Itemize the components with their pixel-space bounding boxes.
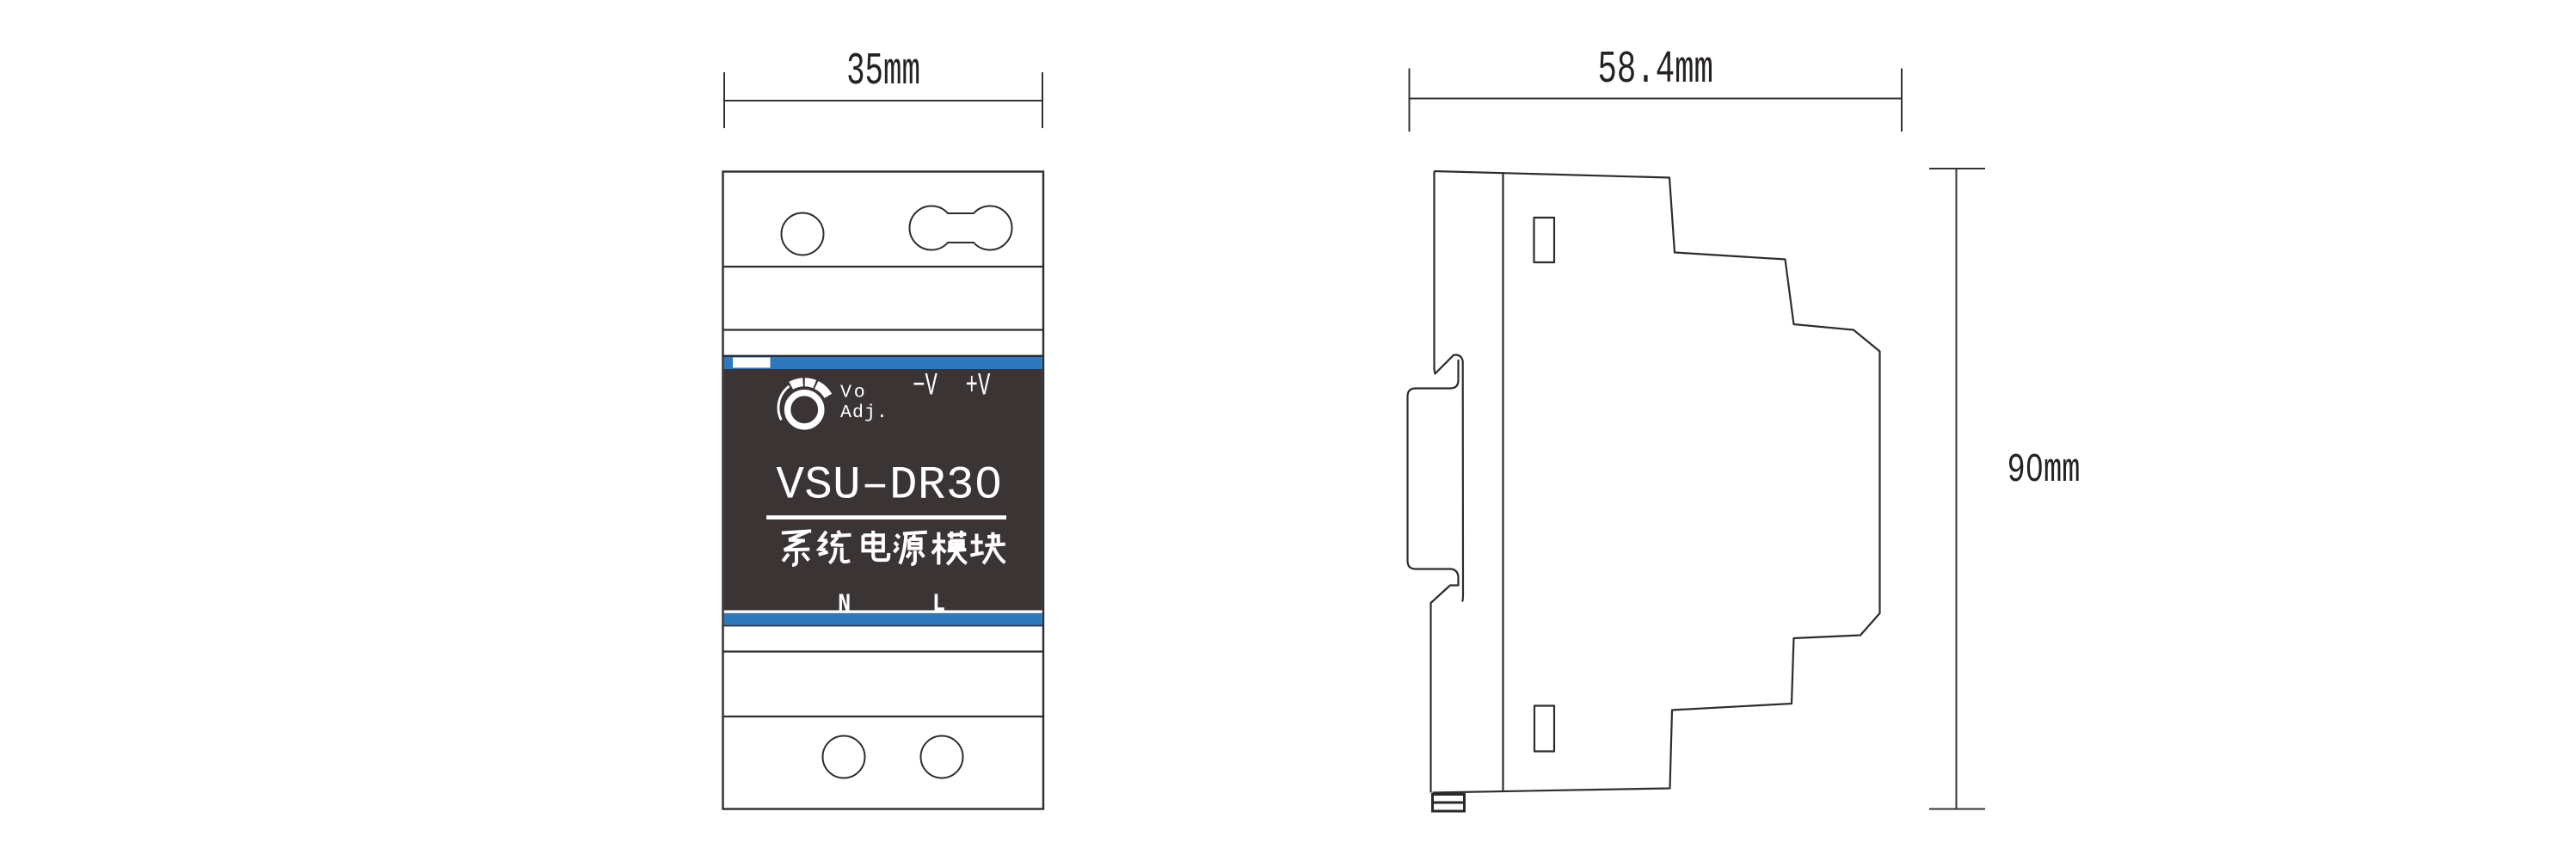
svg-text:58.4mm: 58.4mm <box>1597 44 1712 95</box>
svg-text:90mm: 90mm <box>2007 446 2081 493</box>
svg-text:N: N <box>838 590 851 618</box>
svg-text:+V: +V <box>966 369 991 405</box>
svg-text:VSU–DR30: VSU–DR30 <box>776 460 1002 513</box>
svg-text:L: L <box>932 590 945 618</box>
svg-text:Vo: Vo <box>840 382 868 403</box>
svg-text:Adj.: Adj. <box>840 403 888 423</box>
svg-text:35mm: 35mm <box>846 46 920 98</box>
svg-text:−V: −V <box>913 369 938 405</box>
